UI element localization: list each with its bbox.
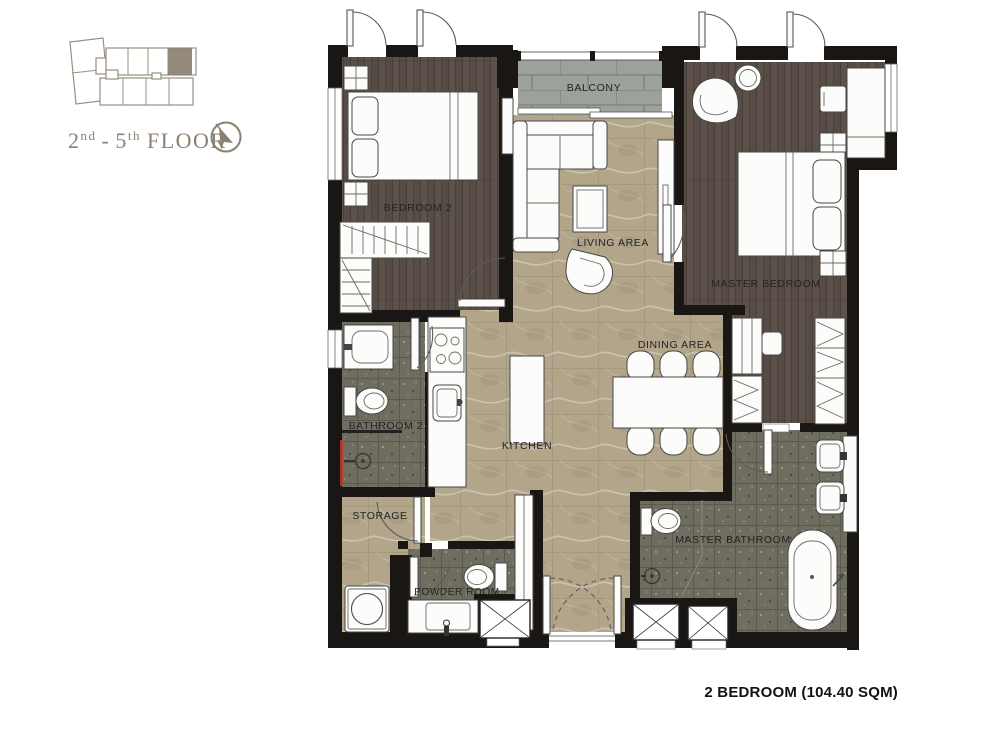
side-table-icon xyxy=(735,65,761,91)
bathroom-sink-icon xyxy=(408,600,478,636)
toilet-icon xyxy=(344,387,388,416)
floor-range-label: 2nd-5thFLOOR xyxy=(68,128,227,153)
armchair-icon xyxy=(692,78,738,123)
dining-furniture xyxy=(613,351,723,455)
unit-caption: 2 BEDROOM (104.40 SQM) xyxy=(704,684,898,701)
room-label-master-bedroom: MASTER BEDROOM xyxy=(711,278,820,290)
washing-machine-icon xyxy=(345,586,389,632)
bed-icon xyxy=(738,152,845,256)
balcony-railing xyxy=(516,51,664,61)
room-label-bedroom2: BEDROOM 2 xyxy=(384,202,452,214)
key-plan-unit-highlight xyxy=(168,48,192,75)
shelf-icon xyxy=(502,98,513,154)
shaft-icon xyxy=(480,600,530,638)
coffee-table-icon xyxy=(573,186,607,232)
room-label-powder: POWDER ROOM xyxy=(414,587,500,598)
bathroom-sink-icon xyxy=(344,325,393,369)
room-label-master-bathroom: MASTER BATHROOM xyxy=(675,534,791,546)
dining-table-icon xyxy=(613,377,723,428)
toilet-icon xyxy=(641,508,681,535)
room-label-living: LIVING AREA xyxy=(577,237,649,249)
bathtub-icon xyxy=(788,530,844,630)
room-label-balcony: BALCONY xyxy=(567,82,621,94)
key-plan: 2nd-5thFLOOR xyxy=(68,38,241,153)
room-label-storage: STORAGE xyxy=(352,510,407,522)
floorplan-page: 2nd-5thFLOOR xyxy=(0,0,1000,731)
kitchen-sink-icon xyxy=(433,385,463,421)
room-label-bathroom2: BATHROOM 2 xyxy=(349,420,424,432)
floorplan-canvas: 2nd-5thFLOOR xyxy=(0,0,1000,731)
kitchen-island-icon xyxy=(510,356,544,444)
room-label-kitchen: KITCHEN xyxy=(502,440,552,452)
room-label-dining: DINING AREA xyxy=(638,339,712,351)
bed-icon xyxy=(348,92,478,180)
stove-icon xyxy=(430,328,464,372)
stool-icon xyxy=(762,332,782,355)
